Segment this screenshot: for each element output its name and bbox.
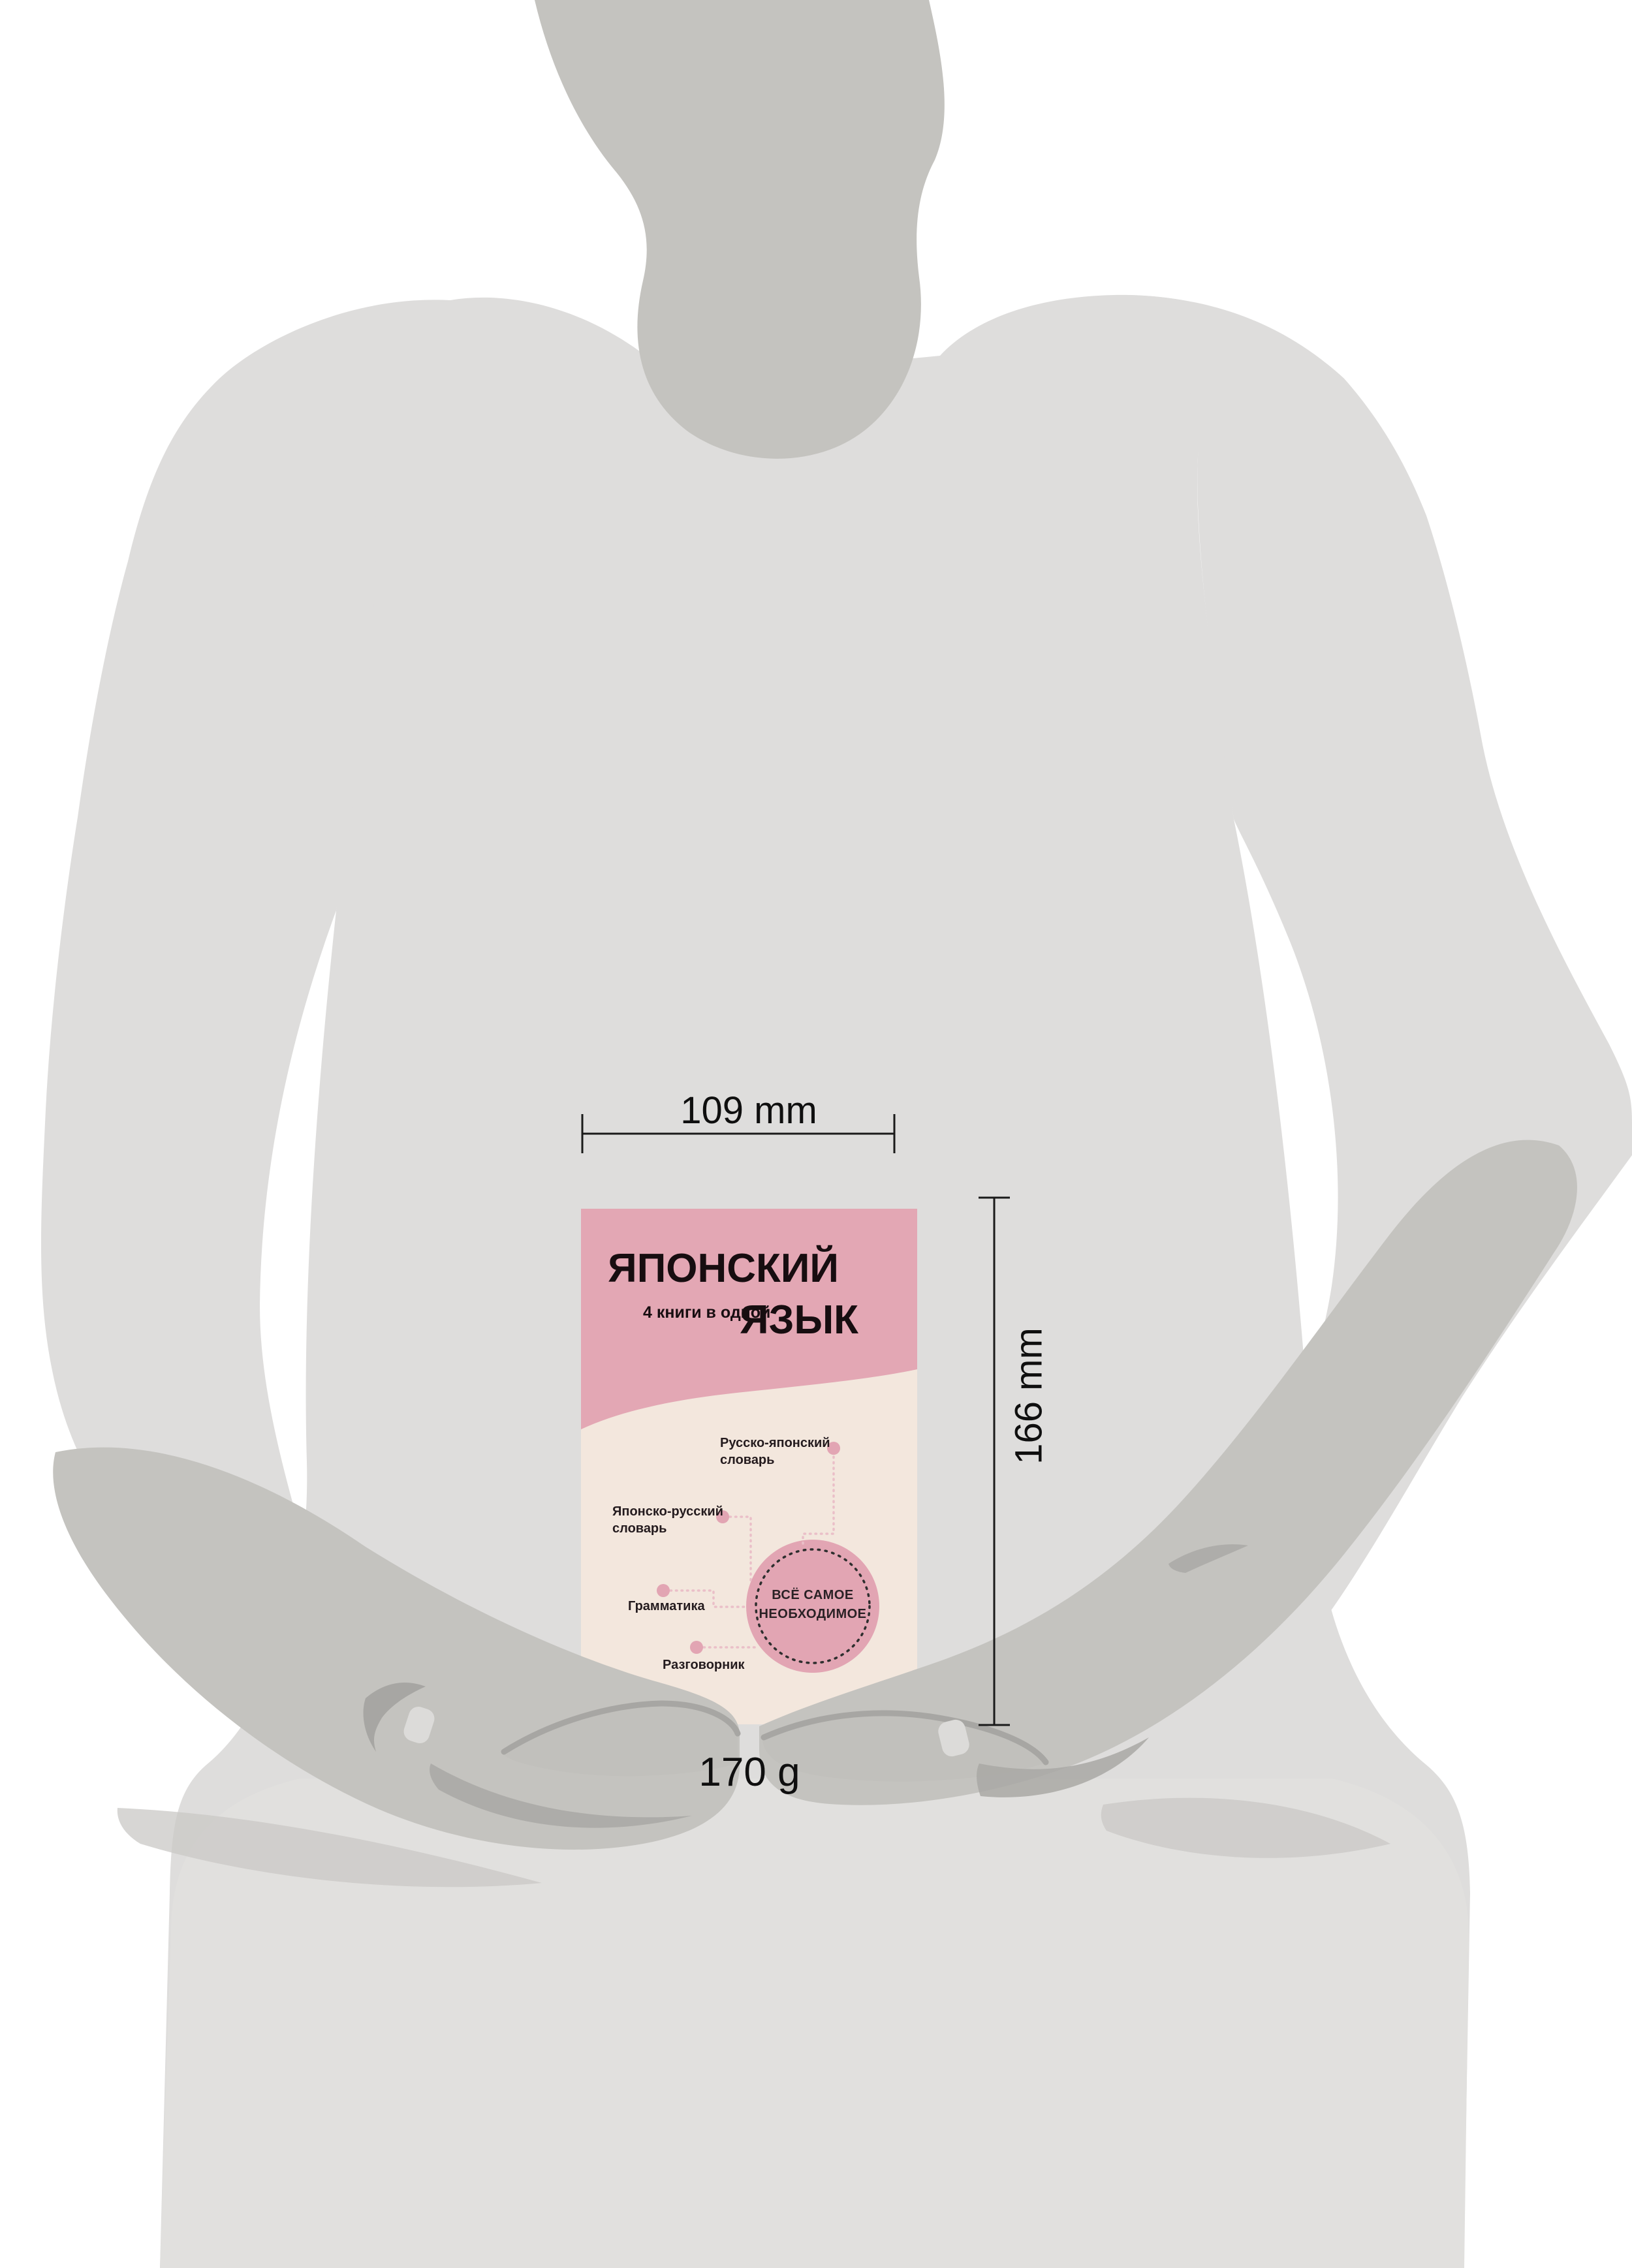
dimension-lines	[0, 0, 1632, 2268]
weight-label: 170 g	[698, 1749, 800, 1795]
mockup-stage: ЯПОНСКИЙ 4 книги в одной ЯЗЫК Русско-япо…	[0, 0, 1632, 2268]
height-dimension-label: 166 mm	[1007, 1328, 1051, 1465]
height-dimension-line	[979, 1198, 1010, 1725]
width-dimension-label: 109 mm	[680, 1089, 817, 1132]
